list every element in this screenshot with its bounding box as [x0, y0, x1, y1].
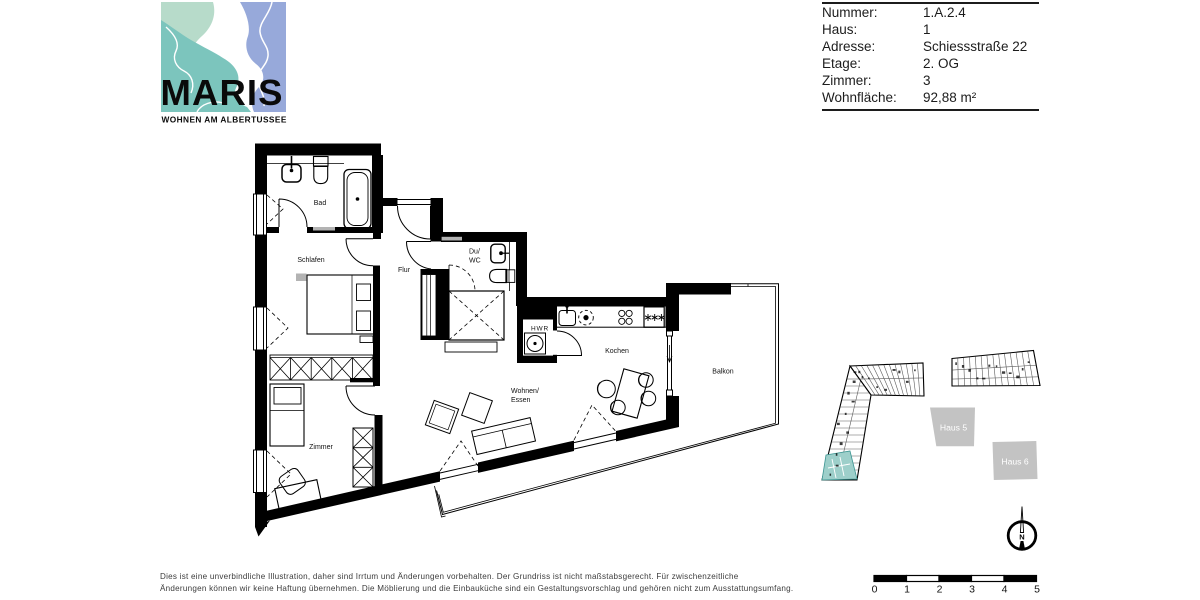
svg-text:Schlafen: Schlafen	[297, 257, 324, 264]
svg-text:0: 0	[872, 584, 878, 596]
svg-text:1: 1	[904, 584, 910, 596]
svg-text:Bad: Bad	[314, 200, 327, 207]
svg-text:2: 2	[937, 584, 943, 596]
svg-text:WC: WC	[469, 258, 481, 265]
svg-text:Haus 6: Haus 6	[1001, 457, 1028, 467]
svg-text:MARIS: MARIS	[161, 72, 284, 113]
svg-text:WOHNEN AM ALBERTUSSEE: WOHNEN AM ALBERTUSSEE	[162, 115, 287, 125]
svg-text:Zimmer: Zimmer	[309, 444, 333, 451]
svg-text:3: 3	[969, 584, 975, 596]
svg-text:HWR: HWR	[531, 326, 549, 333]
svg-text:Du/: Du/	[469, 249, 480, 256]
svg-text:Wohnen/: Wohnen/	[511, 388, 539, 395]
svg-text:4: 4	[1002, 584, 1008, 596]
svg-text:Essen: Essen	[511, 397, 531, 404]
svg-text:Flur: Flur	[398, 267, 411, 274]
svg-text:Haus 5: Haus 5	[940, 423, 967, 433]
svg-text:N: N	[1019, 533, 1024, 542]
svg-text:Kochen: Kochen	[605, 348, 629, 355]
svg-text:Balkon: Balkon	[712, 369, 734, 376]
svg-text:5: 5	[1034, 584, 1040, 596]
